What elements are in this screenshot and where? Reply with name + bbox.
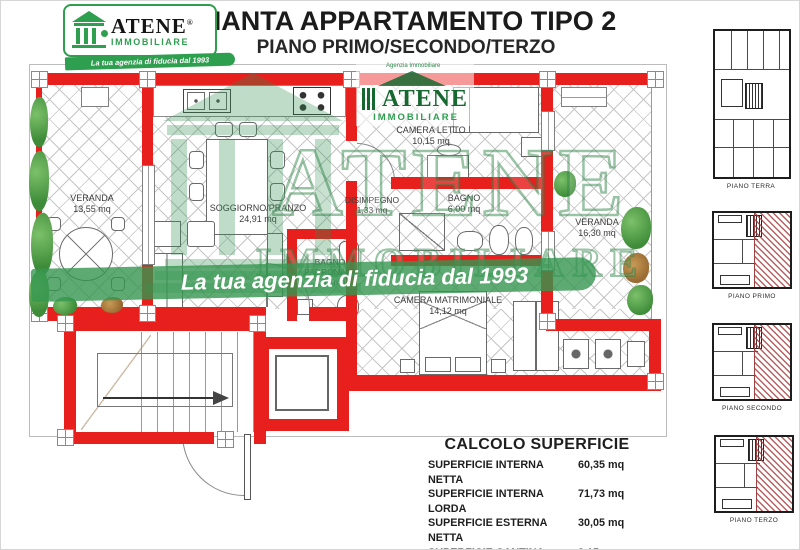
nightstand: [400, 359, 415, 373]
temple-column-icon: [84, 28, 88, 44]
thumbnail-caption: PIANO TERRA: [701, 183, 800, 190]
pillar: [217, 431, 234, 448]
stove: [293, 87, 331, 115]
chair: [189, 151, 204, 169]
logo-name: ATENE®: [111, 14, 194, 39]
surface-table-title: CALCOLO SUPERFICIE: [428, 436, 646, 454]
stair-arrow: [103, 397, 215, 399]
pillar: [57, 315, 74, 332]
table-row: SUPERFICIE ESTERNA NETTA30,05 mq: [428, 516, 646, 545]
room-label-soggiorno: SOGGIORNO/PRANZO24,91 mq: [193, 203, 323, 225]
shower: [399, 213, 445, 251]
table-row: SUPERFICIE INTERNA LORDA71,73 mq: [428, 487, 646, 516]
wall: [541, 85, 553, 111]
room-label-camera-letto: CAMERA LETTO10,15 mq: [386, 125, 476, 147]
pillar: [139, 71, 156, 88]
thumbnail-piano-secondo: [712, 323, 792, 401]
chair: [270, 151, 285, 169]
wall: [64, 319, 266, 331]
entrance-door-leaf: [244, 434, 251, 500]
temple-column-icon: [92, 28, 96, 44]
sink-basin: [187, 92, 205, 110]
chair: [215, 122, 233, 137]
temple-roof-icon: [378, 71, 446, 86]
pillar: [249, 315, 266, 332]
watermark-logo: Agenzia Immobiliare ATENE IMMOBILIARE: [356, 62, 474, 126]
bathroom-sink: [457, 231, 483, 251]
wall: [391, 177, 541, 189]
pillow: [455, 357, 481, 372]
thumbnail-caption: PIANO PRIMO: [702, 293, 800, 300]
nightstand: [491, 359, 506, 373]
plant: [554, 171, 576, 197]
window: [81, 87, 109, 107]
watermark-logo-sub: IMMOBILIARE: [360, 112, 472, 123]
wall: [309, 307, 351, 321]
pillar: [139, 305, 156, 322]
wall: [64, 432, 214, 444]
watermark-agency-label: Agenzia Immobiliare: [386, 63, 440, 69]
listing-floorplan-image: PIANTA APPARTAMENTO TIPO 2 PIANO PRIMO/S…: [0, 0, 800, 550]
cabinet: [627, 341, 645, 367]
wall: [341, 375, 661, 391]
chair: [111, 217, 125, 231]
wall: [64, 319, 76, 444]
watermark-logo-name: ATENE: [376, 86, 474, 113]
table-row: SUPERFICIE INTERNA NETTA60,35 mq: [428, 458, 646, 487]
table-row: SUPERFICIE CANTINA2,15 mq: [428, 546, 646, 550]
pillar: [647, 71, 664, 88]
temple-columns-icon: [362, 88, 375, 110]
armchair: [187, 221, 215, 247]
logo-dot-icon: [101, 30, 108, 37]
room-label-disimpegno: DISIMPEGNO1,33 mq: [341, 195, 403, 215]
thumbnail-piano-primo: [712, 211, 792, 289]
room-label-camera-matrimoniale: CAMERA MATRIMONIALE14,12 mq: [389, 295, 507, 317]
temple-column-icon: [76, 28, 80, 44]
thumbnail-caption: PIANO SECONDO: [702, 405, 800, 412]
nightstand: [521, 137, 543, 157]
window: [142, 165, 155, 265]
thumbnail-piano-terzo: [714, 435, 794, 513]
plant: [29, 151, 49, 211]
temple-architrave-icon: [74, 23, 104, 26]
stair-arrow-head: [213, 391, 229, 405]
pillar: [57, 429, 74, 446]
chair: [239, 122, 257, 137]
registered-mark: ®: [187, 18, 194, 27]
wall: [142, 85, 153, 165]
pillar: [539, 71, 556, 88]
elevator-car: [275, 355, 329, 411]
wall: [541, 149, 553, 231]
temple-roof-icon: [72, 11, 106, 22]
chair: [270, 183, 285, 201]
pillow: [425, 357, 451, 372]
surface-table: CALCOLO SUPERFICIE SUPERFICIE INTERNA NE…: [428, 436, 646, 550]
plant: [627, 285, 653, 315]
sink-basin: [209, 92, 227, 110]
pillar: [647, 373, 664, 390]
pillar: [539, 313, 556, 330]
bidet: [515, 227, 533, 255]
side-table: [153, 221, 181, 247]
toilet: [489, 225, 509, 255]
room-label-veranda-right: VERANDA16,30 mq: [561, 217, 633, 239]
wall: [287, 229, 357, 239]
wall: [546, 319, 661, 331]
logo-subtitle: IMMOBILIARE: [111, 37, 189, 47]
plant: [30, 97, 48, 147]
thumbnail-piano-terra: [713, 29, 791, 179]
plant: [31, 213, 53, 275]
window: [561, 87, 607, 107]
page-title: PIANTA APPARTAMENTO TIPO 2: [151, 6, 661, 37]
agency-logo: ATENE® IMMOBILIARE: [63, 4, 217, 57]
thumbnail-caption: PIANO TERZO: [704, 517, 800, 524]
chair: [189, 183, 204, 201]
veranda-edge: [651, 85, 652, 321]
window: [541, 111, 555, 151]
room-label-veranda-left: VERANDA13,55 mq: [53, 193, 131, 215]
pillar: [31, 71, 48, 88]
room-label-bagno: BAGNO6,00 mq: [433, 193, 495, 215]
plant: [623, 253, 649, 283]
washing-machine: [595, 339, 621, 369]
washing-machine: [563, 339, 589, 369]
temple-base-icon: [72, 45, 106, 48]
